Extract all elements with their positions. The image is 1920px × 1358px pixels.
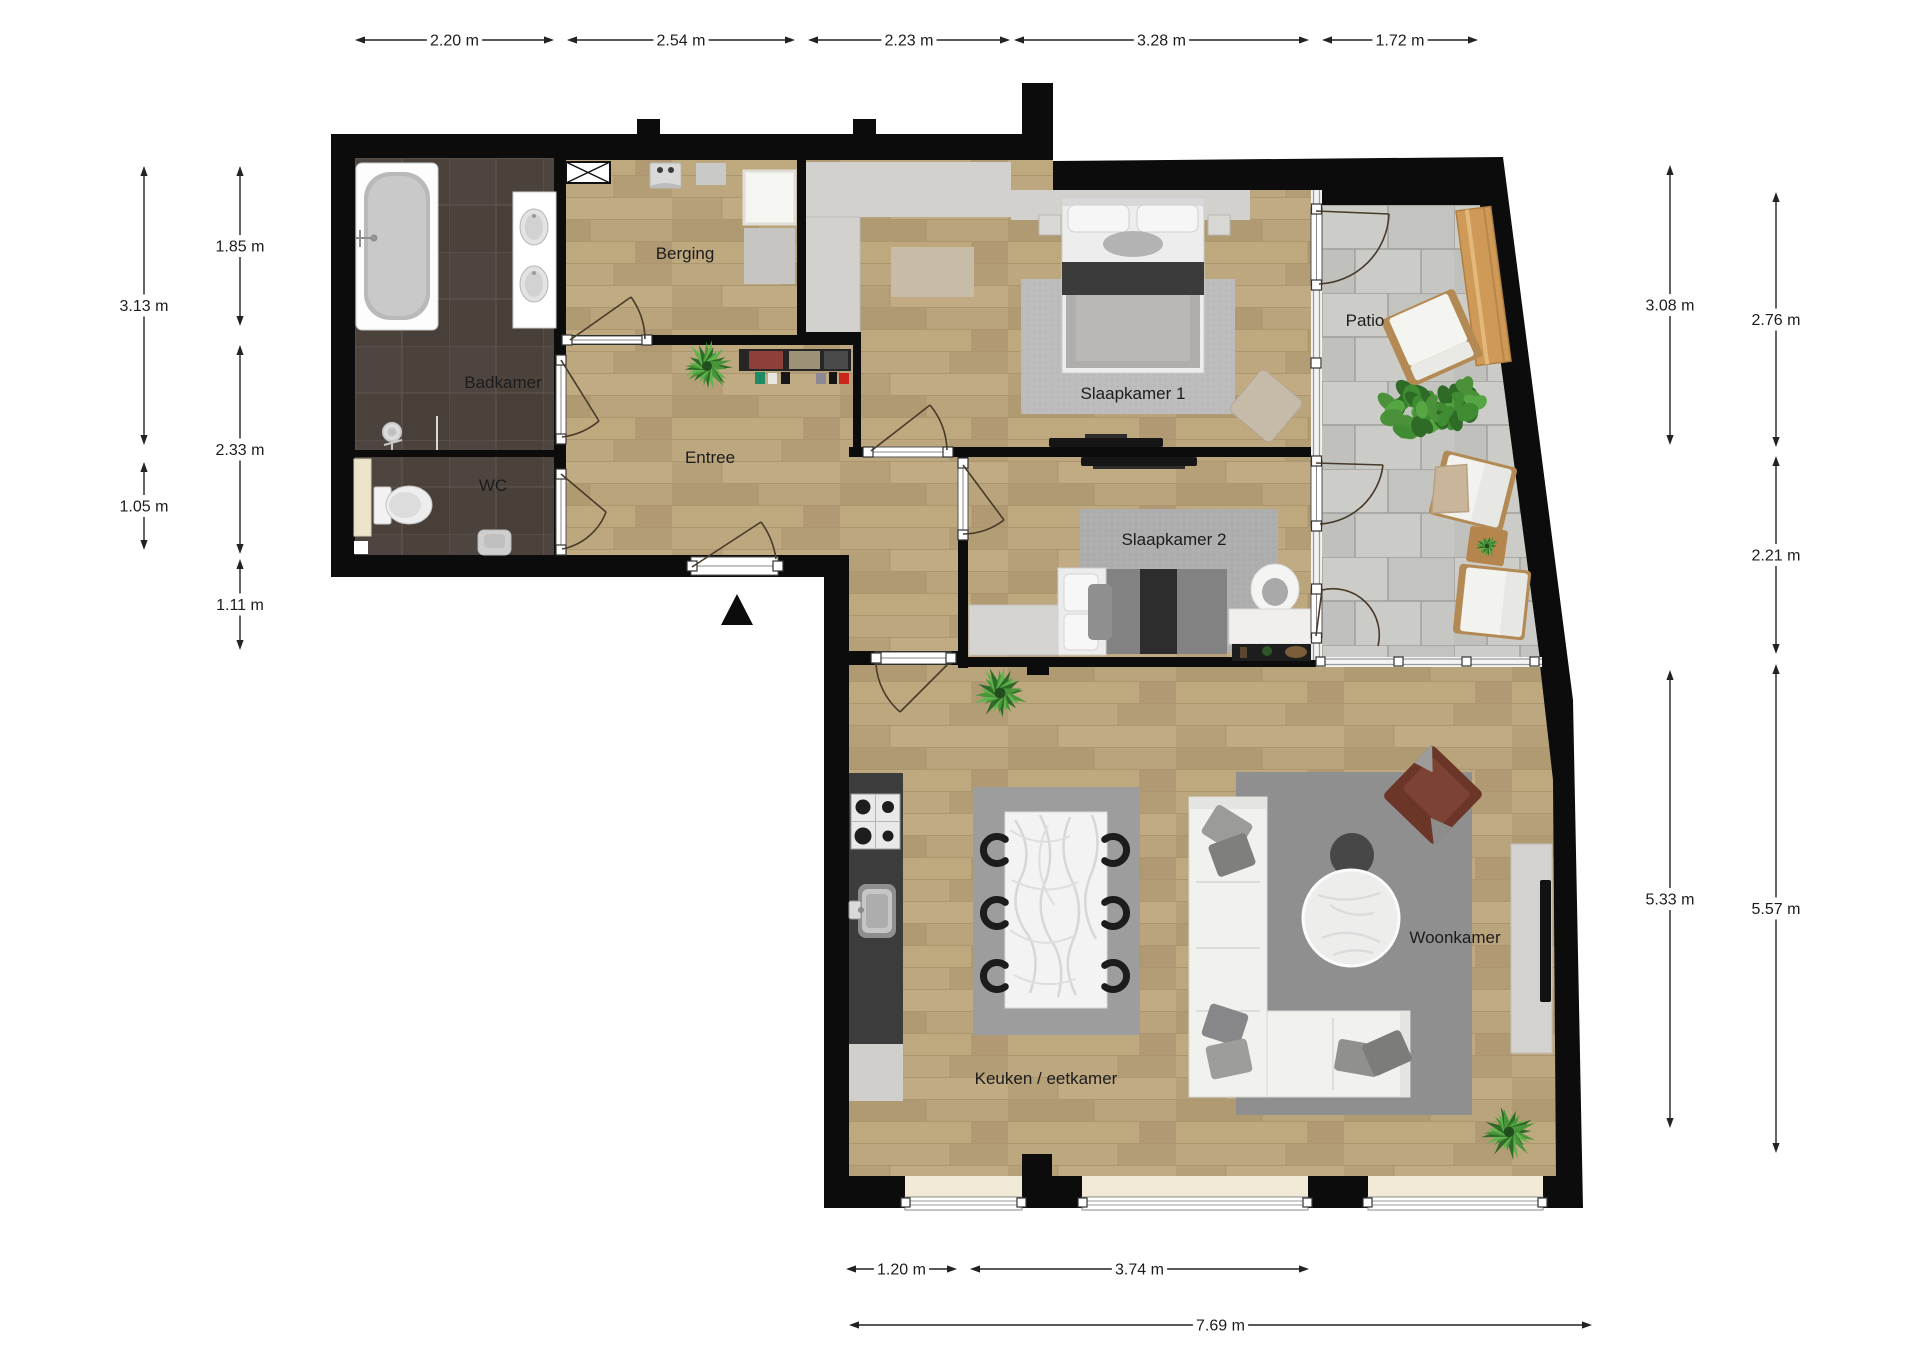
svg-text:5.33 m: 5.33 m bbox=[1646, 892, 1695, 909]
svg-text:1.11 m: 1.11 m bbox=[216, 597, 264, 614]
svg-text:Slaapkamer 2: Slaapkamer 2 bbox=[1122, 530, 1227, 549]
svg-text:1.05 m: 1.05 m bbox=[120, 499, 169, 516]
svg-text:2.20 m: 2.20 m bbox=[430, 33, 479, 50]
svg-text:Keuken / eetkamer: Keuken / eetkamer bbox=[975, 1069, 1118, 1088]
svg-text:WC: WC bbox=[479, 476, 507, 495]
svg-text:3.28 m: 3.28 m bbox=[1137, 33, 1186, 50]
svg-text:2.76 m: 2.76 m bbox=[1752, 312, 1801, 329]
svg-text:3.74 m: 3.74 m bbox=[1115, 1262, 1164, 1279]
svg-text:3.08 m: 3.08 m bbox=[1646, 298, 1695, 315]
svg-text:2.33 m: 2.33 m bbox=[216, 442, 265, 459]
svg-text:3.13 m: 3.13 m bbox=[120, 298, 169, 315]
svg-text:Patio: Patio bbox=[1346, 311, 1385, 330]
svg-text:2.54 m: 2.54 m bbox=[657, 33, 706, 50]
svg-text:2.23 m: 2.23 m bbox=[885, 33, 934, 50]
svg-text:1.72 m: 1.72 m bbox=[1376, 33, 1425, 50]
svg-text:Slaapkamer 1: Slaapkamer 1 bbox=[1081, 384, 1186, 403]
svg-text:1.20 m: 1.20 m bbox=[877, 1262, 926, 1279]
svg-text:Entree: Entree bbox=[685, 448, 735, 467]
svg-text:1.85 m: 1.85 m bbox=[216, 239, 265, 256]
svg-text:5.57 m: 5.57 m bbox=[1752, 901, 1801, 918]
svg-text:Woonkamer: Woonkamer bbox=[1409, 928, 1501, 947]
svg-text:2.21 m: 2.21 m bbox=[1752, 548, 1801, 565]
svg-text:7.69 m: 7.69 m bbox=[1196, 1318, 1245, 1335]
svg-text:Badkamer: Badkamer bbox=[464, 373, 542, 392]
svg-text:Berging: Berging bbox=[656, 244, 715, 263]
